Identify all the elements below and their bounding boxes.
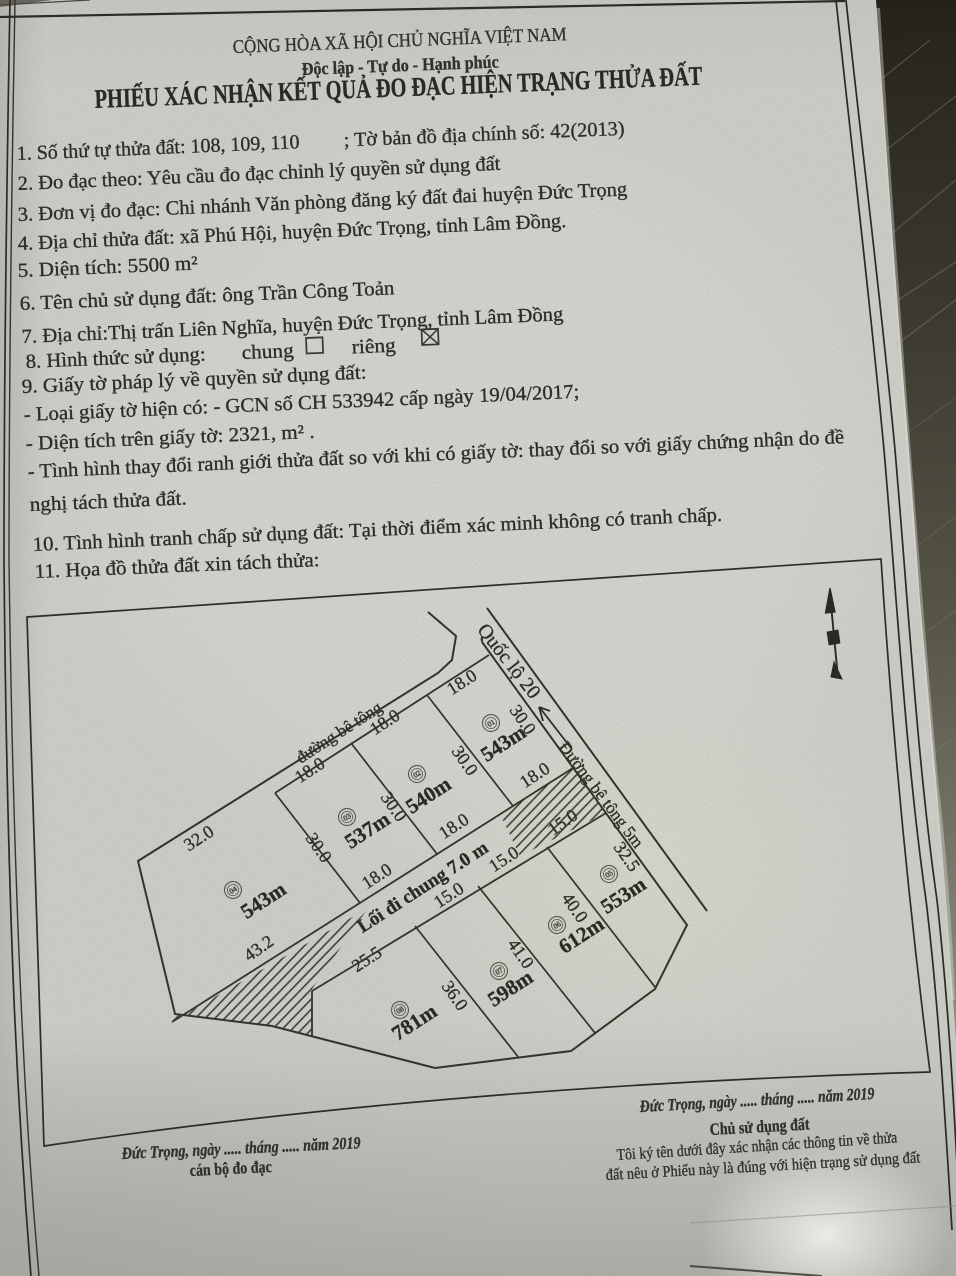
svg-text:riêng: riêng [351, 335, 396, 359]
svg-text:chung: chung [241, 340, 294, 364]
svg-text:cán bộ đo đạc: cán bộ đo đạc [189, 1157, 272, 1180]
